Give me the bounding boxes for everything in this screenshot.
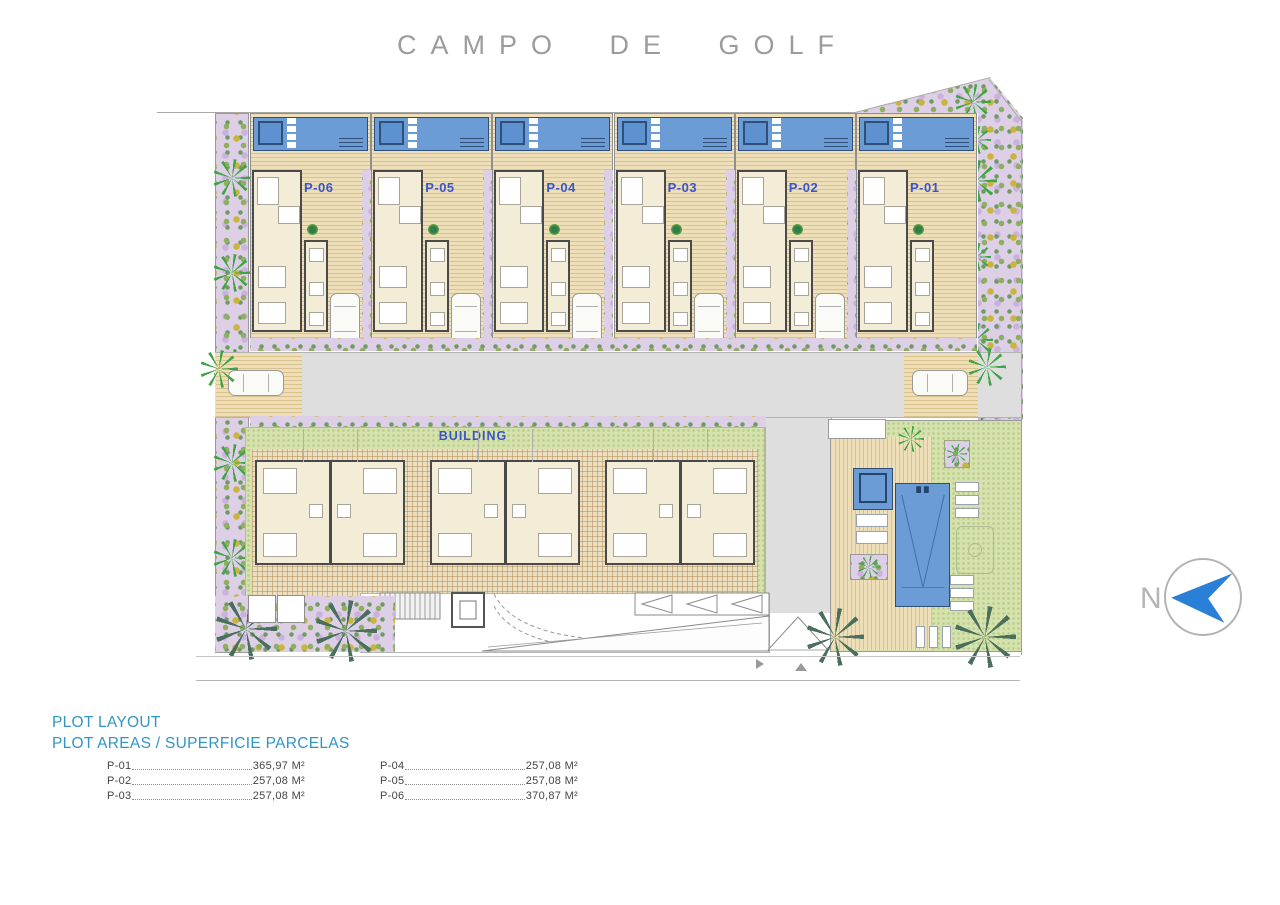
sofa — [499, 177, 521, 205]
bed — [438, 533, 472, 557]
lounger — [942, 626, 951, 648]
pool-steps — [824, 135, 848, 148]
garden-bottom-left — [215, 596, 395, 652]
parked-car-right — [912, 370, 968, 396]
bed — [263, 468, 297, 494]
bath-fixture — [430, 282, 445, 296]
bath-fixture — [673, 248, 688, 262]
dining-table — [642, 206, 664, 224]
pool-deck-strip — [529, 118, 538, 150]
roof-line — [478, 429, 479, 462]
bath-fixture — [309, 248, 324, 262]
lounger — [856, 514, 888, 527]
dining-table — [399, 206, 421, 224]
pool-steps — [460, 135, 484, 148]
plot-area-value: 257,08 M² — [526, 775, 578, 787]
villa-plot: P-03 — [614, 113, 735, 345]
leader-dots — [405, 784, 524, 785]
villa-house — [373, 170, 423, 332]
palm-icon — [806, 608, 864, 666]
lounger — [955, 482, 979, 492]
leader-dots — [132, 799, 251, 800]
lounger — [916, 626, 925, 648]
bed — [263, 533, 297, 557]
pool-deck-strip — [408, 118, 417, 150]
datum-line — [196, 680, 1020, 681]
bath-fixture — [673, 312, 688, 326]
plot-label: P-02 — [789, 180, 818, 195]
north-circle — [1164, 558, 1242, 636]
sofa — [621, 177, 643, 205]
garden-strip-villas-bottom — [250, 338, 977, 351]
sofa — [742, 177, 764, 205]
table — [659, 504, 673, 518]
lounger — [955, 508, 979, 518]
roof-line — [707, 429, 708, 462]
building-label: BUILDING — [398, 429, 548, 443]
ramp-area — [360, 590, 830, 656]
roof-line — [532, 429, 533, 462]
bath-fixture — [309, 312, 324, 326]
bath-fixture — [551, 248, 566, 262]
jacuzzi-inner — [859, 473, 887, 503]
villa-pool — [374, 117, 489, 151]
pool-spa — [622, 121, 647, 145]
planter — [850, 554, 888, 580]
pool-steps — [703, 135, 727, 148]
dining-table — [884, 206, 906, 224]
plot-area-row: P-04257,08 M² — [380, 757, 578, 772]
bed — [379, 266, 407, 288]
villa-plot: P-06 — [250, 113, 371, 345]
plot-area-value: 257,08 M² — [526, 760, 578, 772]
plot-label: P-01 — [910, 180, 939, 195]
datum-line — [196, 656, 1020, 657]
villa-pool — [617, 117, 732, 151]
pool-steps — [945, 135, 969, 148]
plot-area-row: P-06370,87 M² — [380, 787, 578, 802]
plot-area-row: P-03257,08 M² — [107, 787, 305, 802]
leader-dots — [405, 799, 524, 800]
table — [309, 504, 323, 518]
villa-house — [737, 170, 787, 332]
pool-spa — [864, 121, 889, 145]
plot-label: P-04 — [546, 180, 575, 195]
villa-pool — [859, 117, 974, 151]
villa-house — [252, 170, 302, 332]
leader-dots — [405, 769, 524, 770]
bath-fixture — [551, 282, 566, 296]
plant-icon — [913, 224, 924, 235]
bed — [258, 266, 286, 288]
plant-icon — [792, 224, 803, 235]
lounger — [950, 575, 974, 585]
villa-house — [616, 170, 666, 332]
bath-fixture — [794, 282, 809, 296]
pool-deck-strip — [772, 118, 781, 150]
bath-fixture — [915, 282, 930, 296]
road — [215, 352, 1021, 418]
plot-area-value: 257,08 M² — [253, 775, 305, 787]
lounger — [856, 531, 888, 544]
plot-id: P-05 — [380, 775, 404, 787]
site-plan-page: CAMPO DE GOLF — [0, 0, 1280, 905]
bath-fixture — [794, 312, 809, 326]
villa-pool — [738, 117, 853, 151]
garden-table-top — [968, 543, 982, 557]
villa-plot: P-02 — [735, 113, 856, 345]
bed — [613, 468, 647, 494]
building-unit-block — [605, 460, 755, 565]
bath-fixture — [915, 248, 930, 262]
bed — [500, 302, 528, 324]
palm-icon — [898, 426, 924, 452]
driveway — [765, 418, 832, 613]
villa-plot: P-05 — [371, 113, 492, 345]
palm-icon — [213, 159, 251, 197]
planter — [944, 440, 970, 468]
bath-fixture — [309, 282, 324, 296]
plot-id: P-06 — [380, 790, 404, 802]
main-pool — [895, 483, 950, 607]
pergola — [828, 419, 886, 439]
roof-line — [357, 429, 358, 462]
villa-bathrooms — [546, 240, 570, 332]
villa-plot: P-04 — [492, 113, 613, 345]
garden-strip-building-top — [250, 416, 766, 427]
building-unit-block — [255, 460, 405, 565]
bed — [379, 302, 407, 324]
bath-fixture — [915, 312, 930, 326]
legend-subheading: PLOT AREAS / SUPERFICIE PARCELAS — [52, 733, 612, 754]
marker-triangle — [756, 659, 764, 669]
plot-id: P-03 — [107, 790, 131, 802]
villa-bathrooms — [304, 240, 328, 332]
pool-spa — [258, 121, 283, 145]
plot-label: P-05 — [425, 180, 454, 195]
roof-line — [303, 429, 304, 462]
villa-plot: P-01 — [856, 113, 977, 345]
legend-heading: PLOT LAYOUT — [52, 712, 612, 733]
bed — [622, 302, 650, 324]
pool-spa — [500, 121, 525, 145]
plot-area-row: P-05257,08 M² — [380, 772, 578, 787]
leader-dots — [132, 784, 251, 785]
villa-pool — [253, 117, 368, 151]
sofa — [257, 177, 279, 205]
plot-areas-column-1: P-01365,97 M² P-02257,08 M² P-03257,08 M… — [107, 757, 305, 802]
table — [512, 504, 526, 518]
garden-divider — [726, 170, 735, 345]
garden-table — [956, 526, 994, 574]
bed — [622, 266, 650, 288]
plot-id: P-02 — [107, 775, 131, 787]
lounger — [955, 495, 979, 505]
table — [687, 504, 701, 518]
bed — [438, 468, 472, 494]
pool-deck-strip — [893, 118, 902, 150]
pool-deck-strip — [287, 118, 296, 150]
building-unit-block — [430, 460, 580, 565]
plot-area-row: P-02257,08 M² — [107, 772, 305, 787]
palm-icon — [213, 254, 251, 292]
party-wall — [329, 462, 332, 563]
palm-icon — [968, 348, 1006, 386]
sofa — [863, 177, 885, 205]
bed — [713, 468, 747, 494]
garden-divider — [362, 170, 371, 345]
bed — [258, 302, 286, 324]
villa-house — [494, 170, 544, 332]
lounger — [950, 588, 974, 598]
palm-icon — [200, 350, 238, 388]
north-label: N — [1140, 582, 1162, 616]
bed — [743, 302, 771, 324]
plant-icon — [671, 224, 682, 235]
pool-steps — [581, 135, 605, 148]
plot-areas-column-2: P-04257,08 M² P-05257,08 M² P-06370,87 M… — [380, 757, 578, 802]
legend: PLOT LAYOUT PLOT AREAS / SUPERFICIE PARC… — [52, 712, 612, 802]
villa-bathrooms — [910, 240, 934, 332]
villa-bathrooms — [668, 240, 692, 332]
bed — [864, 302, 892, 324]
bed — [864, 266, 892, 288]
lounger — [929, 626, 938, 648]
bed — [500, 266, 528, 288]
villa-bathrooms — [425, 240, 449, 332]
plant-icon — [428, 224, 439, 235]
bed — [713, 533, 747, 557]
dining-table — [278, 206, 300, 224]
pool-depth-lines — [896, 484, 949, 606]
table — [337, 504, 351, 518]
dining-table — [520, 206, 542, 224]
dining-table — [763, 206, 785, 224]
villa-house — [858, 170, 908, 332]
party-wall — [679, 462, 682, 563]
bed — [743, 266, 771, 288]
pool-spa — [743, 121, 768, 145]
plant-icon — [549, 224, 560, 235]
plot-area-value: 365,97 M² — [253, 760, 305, 772]
bath-fixture — [430, 312, 445, 326]
palm-icon — [954, 606, 1016, 668]
pool-steps — [339, 135, 363, 148]
plot-area-value: 257,08 M² — [253, 790, 305, 802]
palm-icon — [315, 600, 377, 662]
pool-spa — [379, 121, 404, 145]
plot-id: P-01 — [107, 760, 131, 772]
page-title: CAMPO DE GOLF — [397, 30, 848, 61]
jacuzzi — [853, 468, 893, 510]
bed — [363, 533, 397, 557]
table — [484, 504, 498, 518]
parking-space — [277, 595, 305, 623]
bed — [613, 533, 647, 557]
palm-icon — [947, 444, 967, 464]
plot-area-row: P-01365,97 M² — [107, 757, 305, 772]
bed — [538, 468, 572, 494]
bed — [538, 533, 572, 557]
sofa — [378, 177, 400, 205]
party-wall — [504, 462, 507, 563]
roof-line — [653, 429, 654, 462]
bed — [363, 468, 397, 494]
bath-fixture — [551, 312, 566, 326]
palm-icon — [858, 556, 880, 578]
leader-dots — [132, 769, 251, 770]
villa-bathrooms — [789, 240, 813, 332]
bath-fixture — [430, 248, 445, 262]
bath-fixture — [794, 248, 809, 262]
plot-label: P-06 — [304, 180, 333, 195]
plot-label: P-03 — [668, 180, 697, 195]
garden-divider — [483, 170, 492, 345]
plot-id: P-04 — [380, 760, 404, 772]
parking-space — [248, 595, 276, 623]
marker-triangle — [795, 663, 807, 671]
garden-divider — [604, 170, 613, 345]
bath-fixture — [673, 282, 688, 296]
villa-pool — [495, 117, 610, 151]
plot-area-value: 370,87 M² — [526, 790, 578, 802]
garden-divider — [847, 170, 856, 345]
pool-deck-strip — [651, 118, 660, 150]
north-arrow-icon — [1166, 560, 1240, 634]
plant-icon — [307, 224, 318, 235]
